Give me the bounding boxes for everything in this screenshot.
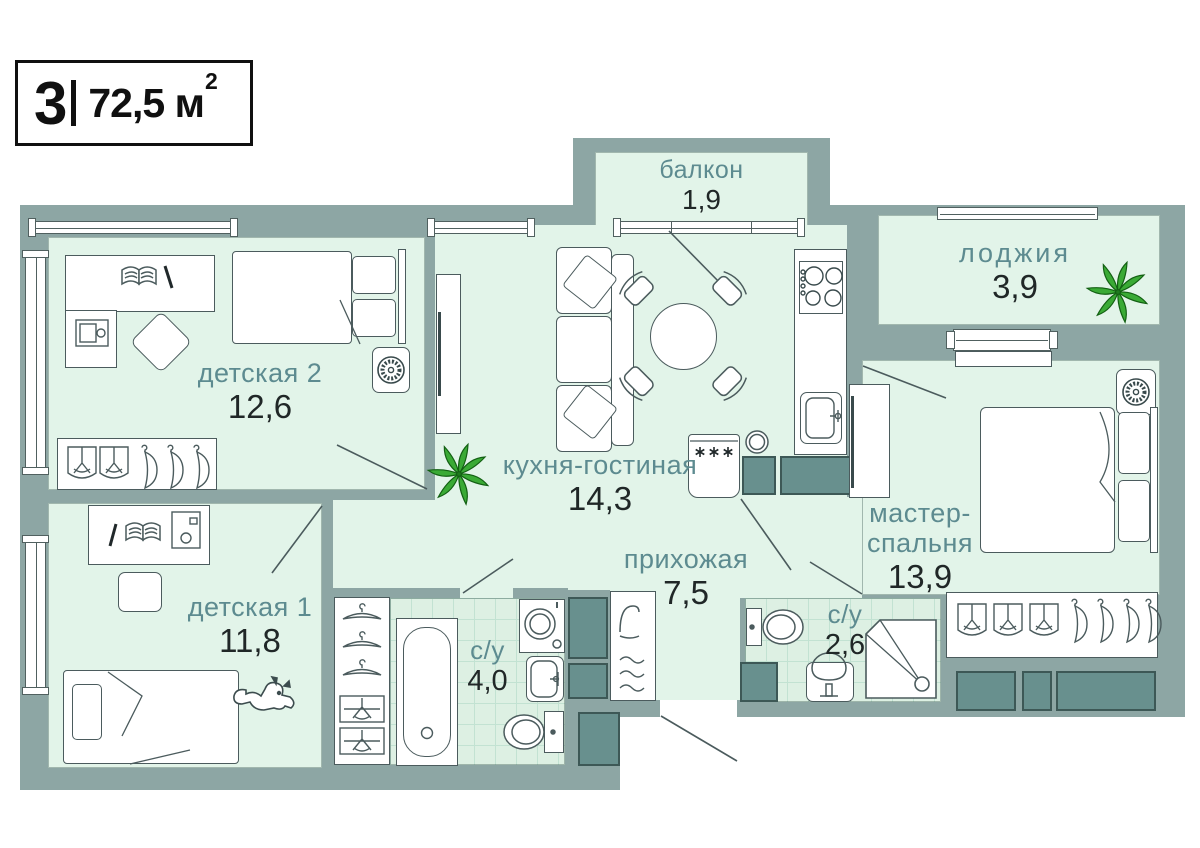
closet-unit [578,712,620,766]
window-cap [797,218,805,237]
window-cap [427,218,435,237]
bed-pillow [72,684,102,740]
bed-headboard [398,249,406,344]
closet-unit [956,671,1016,711]
toilet-tank [544,711,564,753]
bed-blanket [980,407,1115,553]
toilet-tank [746,608,762,646]
bed-pillow [1118,480,1150,542]
desk-return [65,310,117,368]
window-balcony-door [618,221,800,234]
entry-opening [660,700,737,718]
chair [118,572,162,612]
wall-bath-main-top2 [513,588,568,598]
wardrobe [946,592,1158,658]
wardrobe [334,597,390,765]
rooms-count: 3 [34,69,65,138]
window-kids1-left [25,540,46,690]
dishwasher [688,434,740,498]
window-cap [28,218,36,237]
window-cap [22,250,49,258]
desk [88,505,210,565]
bed-pillow [352,256,396,294]
window-cap [22,467,49,475]
hall-vanity [610,591,656,701]
bed-blanket [232,251,352,344]
loggia-sill [955,351,1052,367]
door-entry [661,716,737,761]
room-balcony [595,152,808,230]
dining-table [650,303,717,370]
desk [65,255,215,312]
window-cap [946,331,955,349]
closet-unit [1022,671,1052,711]
bed-pillow [352,299,396,337]
apartment-badge: 3 72,5 м2 [15,60,253,146]
area-superscript: 2 [205,68,217,94]
counter-unit [742,456,776,495]
washing-machine [519,599,565,653]
bed-pillow [1118,412,1150,474]
sofa-seat [556,316,612,383]
bed-headboard [1150,407,1158,553]
closet-unit [740,662,778,702]
area-value: 72,5 м2 [88,80,215,127]
window-cap [527,218,535,237]
badge-divider [71,80,76,126]
counter-unit [780,456,852,495]
window-cap [22,687,49,695]
window-kids2-top [33,221,233,234]
kitchen-sink [800,392,842,444]
wardrobe [57,438,217,490]
window-cap [22,535,49,543]
window-cap [613,218,621,237]
closet-unit [568,597,608,659]
passage-to-master [740,497,862,598]
closet-unit [568,663,608,699]
tv-icon [438,312,441,396]
fridge-tv-unit [849,384,890,498]
window-loggia-master [953,329,1051,351]
wall-kids1-wardrobe [322,597,334,765]
closet-unit [1056,671,1156,711]
floor-plan: балкон 1,9 лоджия 3,9 детская 2 12,6 кух… [0,0,1200,848]
tv-icon [851,396,854,488]
room-loggia [878,215,1160,325]
window-kitchen-top [432,221,530,234]
window-kids2-left [25,255,46,470]
fan-stand [372,347,410,393]
window-loggia-top [937,207,1098,220]
bathtub-inner [403,627,451,757]
window-cap [230,218,238,237]
bath-sink [526,656,564,702]
window-cap [1049,331,1058,349]
bath-sink [806,662,854,702]
stove [799,261,843,314]
